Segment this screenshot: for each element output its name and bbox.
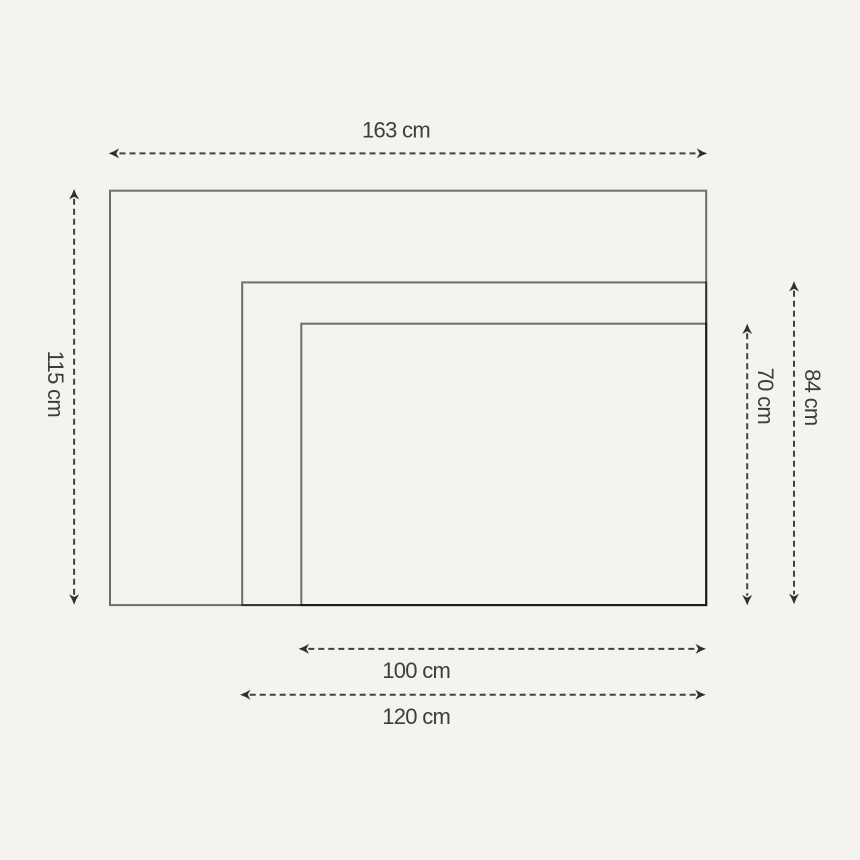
svg-text:100 cm: 100 cm bbox=[382, 658, 450, 683]
svg-text:163 cm: 163 cm bbox=[362, 118, 430, 143]
svg-text:70 cm: 70 cm bbox=[753, 368, 778, 424]
svg-text:120 cm: 120 cm bbox=[382, 704, 450, 729]
svg-text:115 cm: 115 cm bbox=[43, 351, 68, 417]
svg-text:84 cm: 84 cm bbox=[800, 369, 825, 425]
